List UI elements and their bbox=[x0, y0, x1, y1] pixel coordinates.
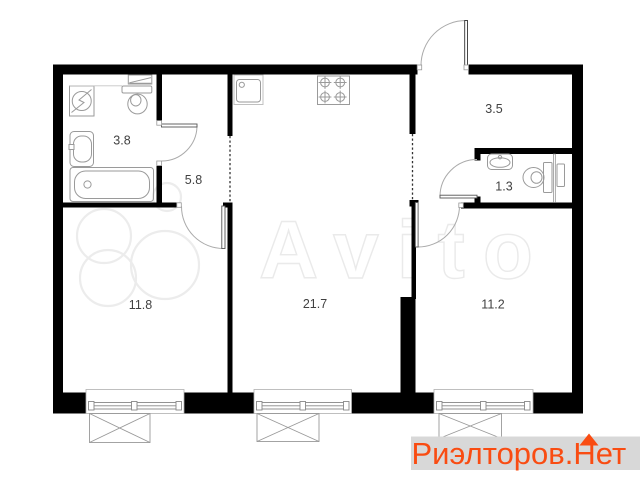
svg-text:11.8: 11.8 bbox=[129, 298, 152, 312]
svg-text:11.2: 11.2 bbox=[481, 298, 504, 312]
svg-text:3.5: 3.5 bbox=[485, 102, 502, 116]
svg-text:3.8: 3.8 bbox=[113, 134, 130, 148]
svg-text:Avito: Avito bbox=[259, 205, 551, 296]
svg-text:5.8: 5.8 bbox=[185, 173, 202, 187]
svg-text:1.3: 1.3 bbox=[495, 180, 512, 194]
svg-text:21.7: 21.7 bbox=[303, 297, 327, 311]
